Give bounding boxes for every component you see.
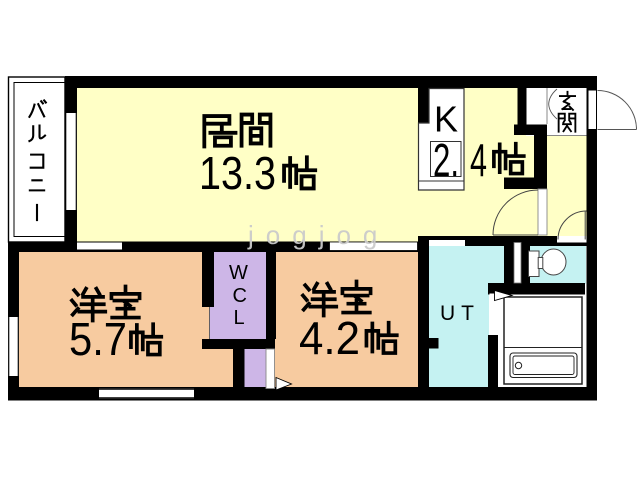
- svg-text:13.3: 13.3: [199, 147, 276, 199]
- svg-text:5.7: 5.7: [69, 313, 127, 365]
- svg-text:L: L: [234, 307, 245, 329]
- svg-text:W: W: [229, 262, 248, 284]
- svg-text:C: C: [233, 285, 247, 307]
- svg-text:jogjog: jogjog: [247, 220, 389, 250]
- svg-text:4.2: 4.2: [299, 312, 360, 364]
- svg-text:2.: 2.: [433, 134, 459, 186]
- svg-text:4: 4: [470, 134, 487, 186]
- svg-text:UT: UT: [440, 302, 480, 325]
